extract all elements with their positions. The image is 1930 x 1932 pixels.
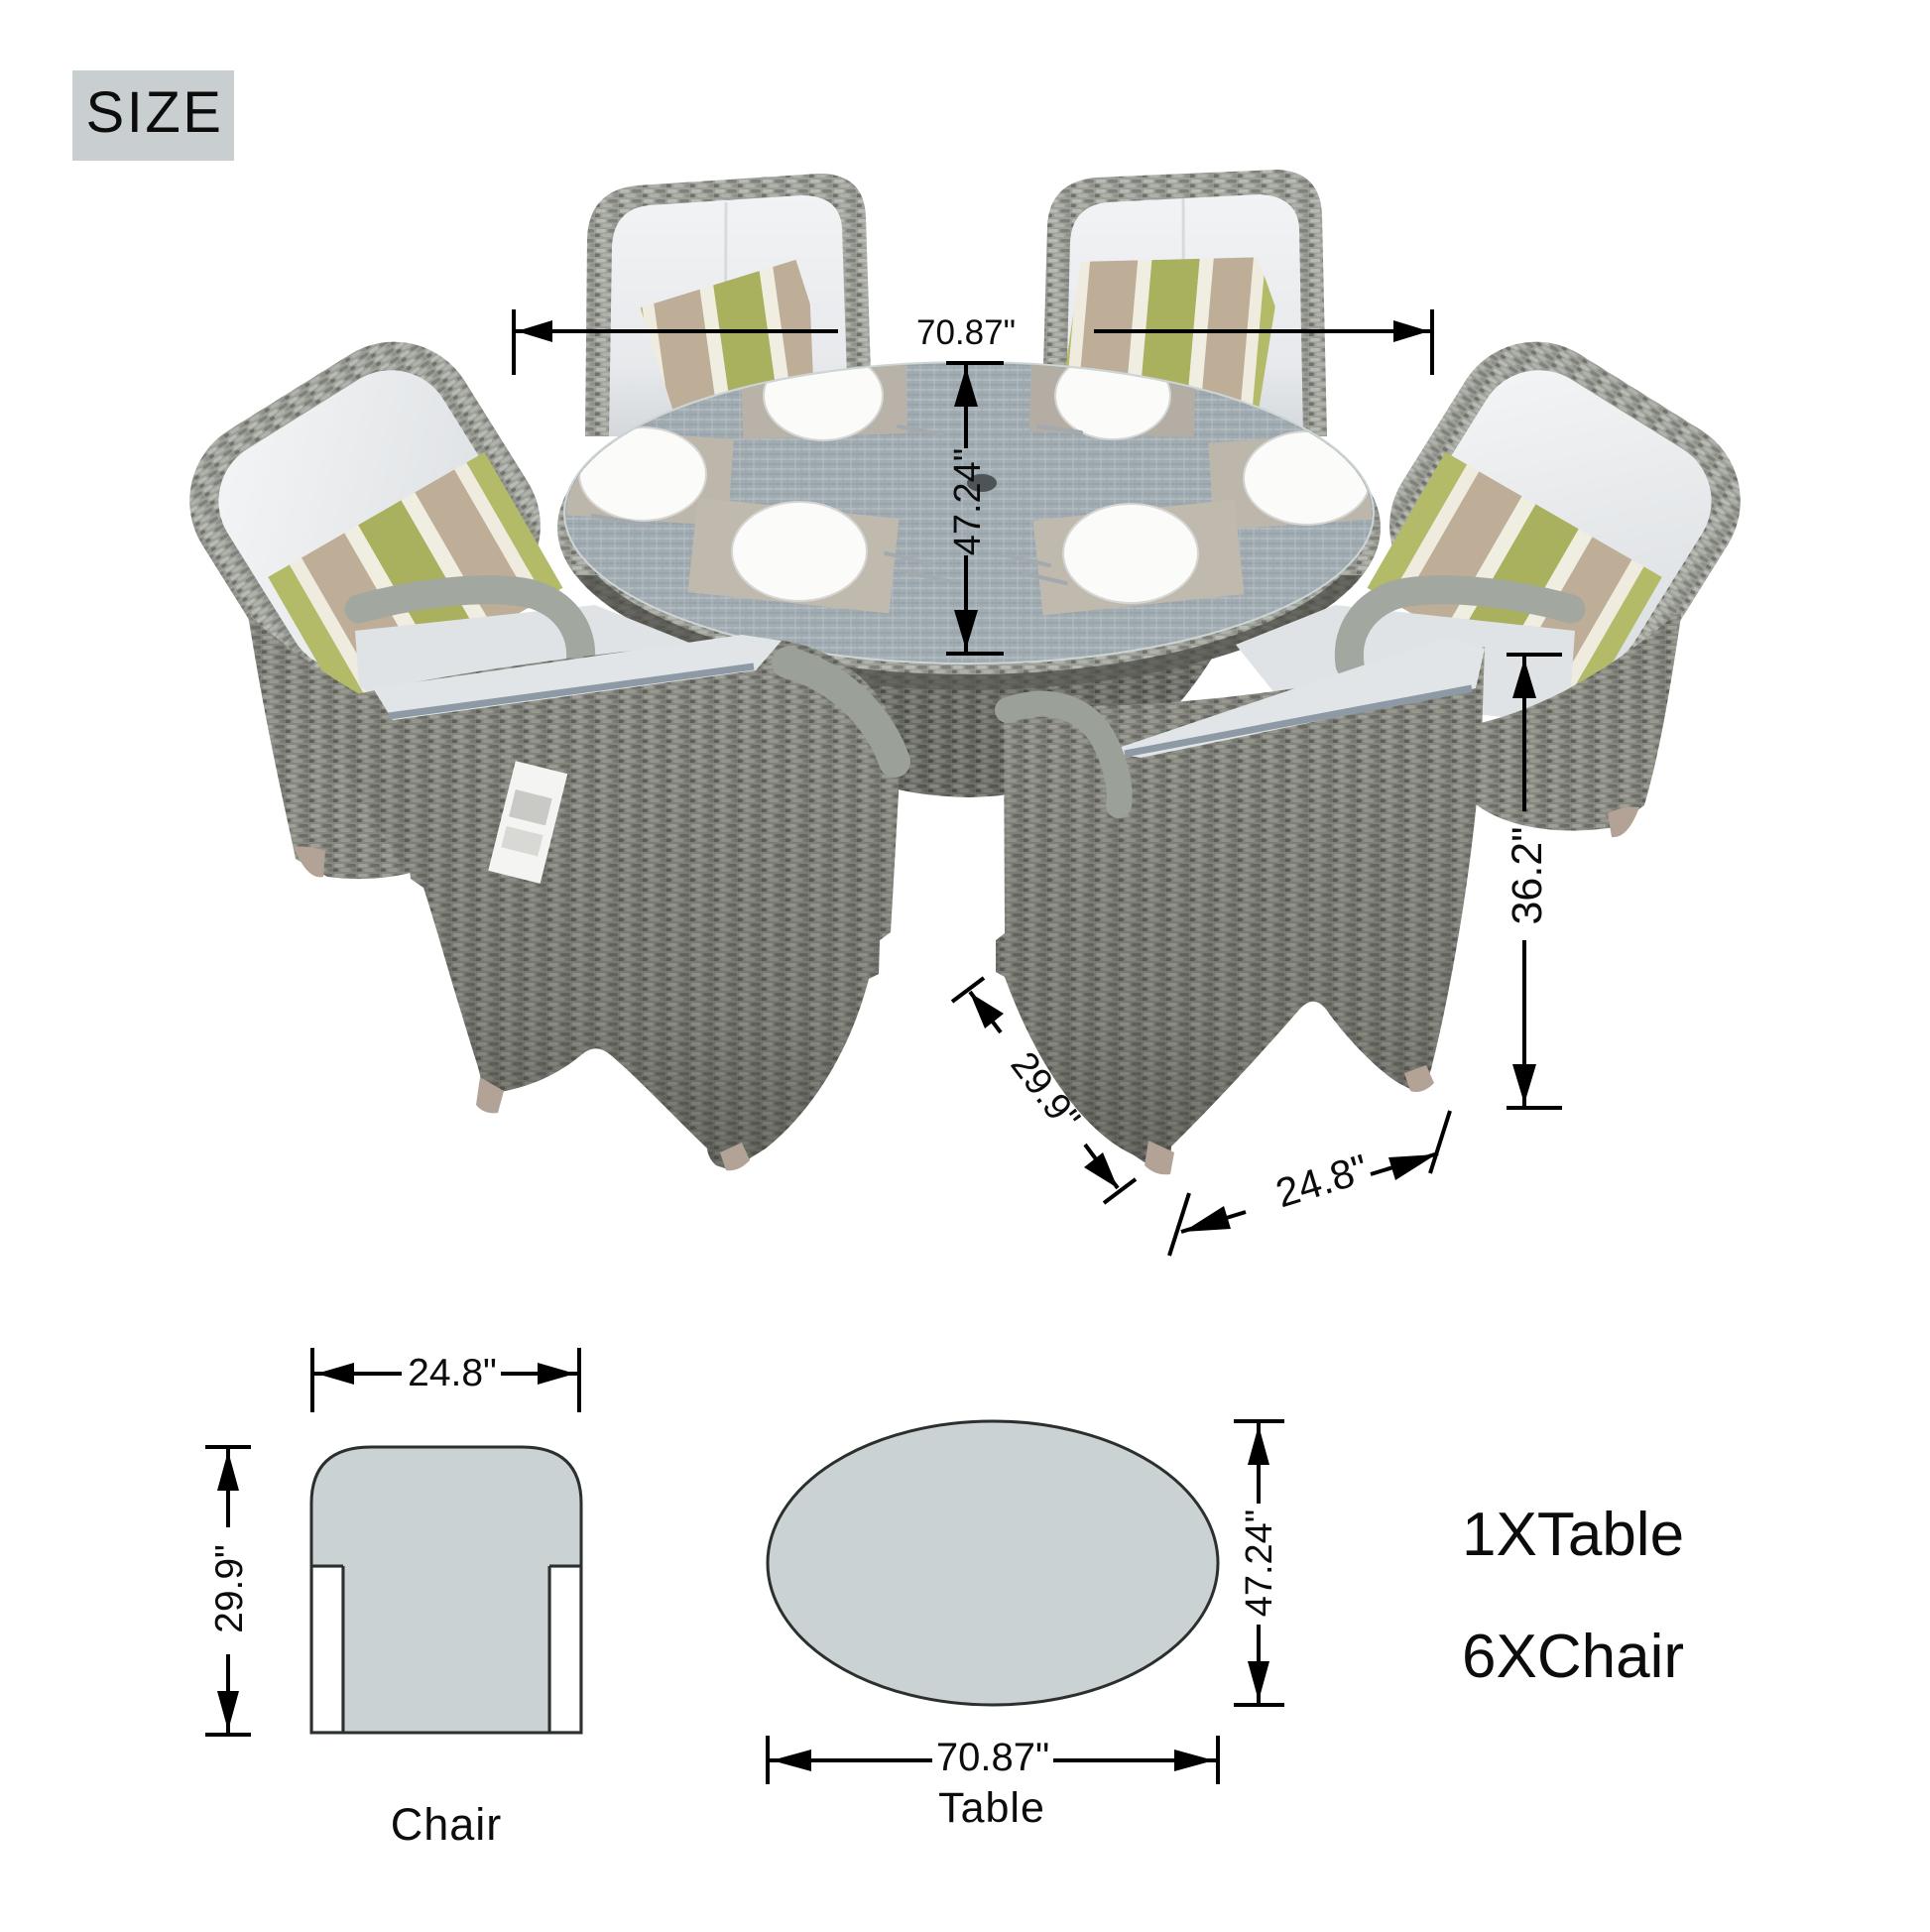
svg-text:Chair: Chair	[391, 1799, 503, 1850]
svg-text:29.9": 29.9"	[208, 1544, 251, 1633]
svg-text:36.2": 36.2"	[1504, 827, 1551, 925]
svg-text:70.87": 70.87"	[916, 313, 1016, 352]
svg-text:Table: Table	[938, 1784, 1045, 1832]
svg-text:70.87": 70.87"	[936, 1736, 1049, 1779]
svg-text:1XTable: 1XTable	[1462, 1501, 1684, 1569]
svg-text:47.24": 47.24"	[947, 448, 989, 556]
svg-text:47.24": 47.24"	[1239, 1509, 1280, 1618]
svg-text:6XChair: 6XChair	[1462, 1623, 1684, 1691]
svg-text:24.8": 24.8"	[408, 1352, 497, 1394]
svg-text:SIZE: SIZE	[86, 80, 224, 145]
